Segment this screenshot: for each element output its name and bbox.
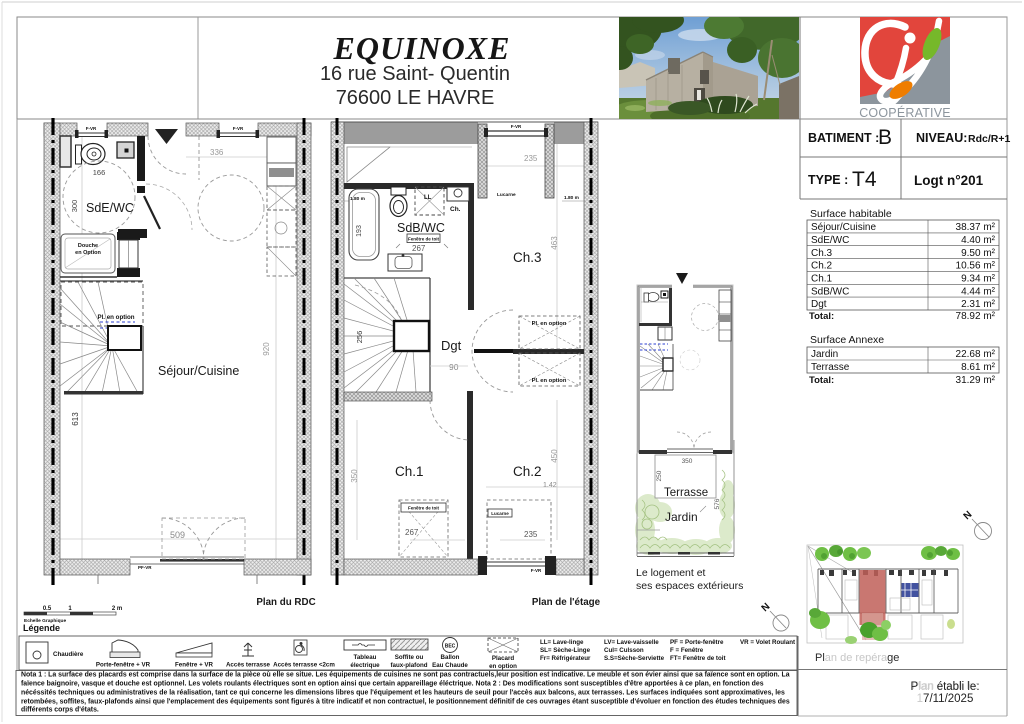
- svg-text:F-VR: F-VR: [531, 568, 542, 573]
- svg-text:en Option: en Option: [75, 250, 101, 256]
- svg-text:SL= Sèche-Linge: SL= Sèche-Linge: [540, 647, 591, 654]
- svg-text:Total:: Total:: [809, 311, 834, 322]
- svg-text:9.34 m²: 9.34 m²: [961, 274, 996, 285]
- svg-text:LL= Lave-linge: LL= Lave-linge: [540, 639, 584, 646]
- svg-text:Soffite ou: Soffite ou: [395, 654, 424, 661]
- svg-text:en option: en option: [489, 663, 517, 670]
- svg-text:faux-plafond: faux-plafond: [390, 662, 427, 669]
- svg-text:Ch.: Ch.: [450, 206, 461, 213]
- svg-text:TYPE :: TYPE :: [808, 173, 848, 187]
- svg-text:Terrasse: Terrasse: [811, 362, 850, 373]
- svg-text:38.37 m²: 38.37 m²: [956, 222, 996, 233]
- svg-text:Surface Annexe: Surface Annexe: [810, 334, 884, 346]
- svg-text:Ch.1: Ch.1: [811, 274, 833, 285]
- svg-text:Fenêtre de toit: Fenêtre de toit: [408, 237, 440, 242]
- svg-text:Dgt: Dgt: [441, 338, 462, 353]
- svg-text:4.44 m²: 4.44 m²: [961, 287, 996, 298]
- svg-text:Séjour/Cuisine: Séjour/Cuisine: [811, 222, 876, 233]
- svg-text:Légende: Légende: [23, 623, 60, 633]
- svg-text:17/11/2025: 17/11/2025: [917, 693, 974, 705]
- svg-text:Séjour/Cuisine: Séjour/Cuisine: [158, 364, 239, 378]
- svg-text:EQUINOXE: EQUINOXE: [333, 30, 511, 66]
- svg-text:Fenêtre + VR: Fenêtre + VR: [175, 662, 214, 669]
- svg-text:S.S=Sèche-Serviette: S.S=Sèche-Serviette: [604, 655, 665, 662]
- svg-text:235: 235: [524, 530, 538, 539]
- svg-text:Nota 1 : La surface des placar: Nota 1 : La surface des placards est com…: [21, 672, 790, 679]
- svg-text:Cul= Culsson: Cul= Culsson: [604, 647, 644, 654]
- svg-text:235: 235: [524, 154, 538, 163]
- svg-text:Plan établi le:: Plan établi le:: [910, 681, 979, 693]
- svg-text:NIVEAU:: NIVEAU:: [916, 131, 967, 145]
- svg-text:Pl. en option: Pl. en option: [532, 378, 567, 384]
- svg-text:0.5: 0.5: [43, 606, 52, 612]
- svg-text:VR = Volet Roulant: VR = Volet Roulant: [740, 639, 795, 646]
- svg-text:Ballon: Ballon: [441, 654, 460, 661]
- svg-text:Jardin: Jardin: [811, 349, 838, 360]
- svg-text:Lucarne: Lucarne: [491, 511, 509, 516]
- svg-text:336: 336: [210, 148, 224, 157]
- svg-text:22.68 m²: 22.68 m²: [956, 349, 996, 360]
- svg-text:SdE/WC: SdE/WC: [86, 201, 134, 215]
- svg-text:Pl. en option: Pl. en option: [97, 314, 134, 321]
- svg-text:nécéssités techniques ou admin: nécéssités techniques ou administratives…: [21, 690, 785, 697]
- svg-text:31.29 m²: 31.29 m²: [956, 375, 996, 386]
- svg-text:Lucarne: Lucarne: [497, 192, 516, 198]
- svg-text:Accès terrasse <2cm: Accès terrasse <2cm: [273, 662, 335, 669]
- svg-text:1.80 m: 1.80 m: [564, 195, 579, 201]
- svg-text:509: 509: [170, 530, 185, 540]
- svg-text:4.40 m²: 4.40 m²: [961, 235, 996, 246]
- svg-text:Jardin: Jardin: [665, 510, 698, 524]
- svg-text:F = Fenêtre: F = Fenêtre: [670, 647, 704, 654]
- svg-text:Surface habitable: Surface habitable: [810, 208, 892, 220]
- svg-text:PF = Porte-fenêtre: PF = Porte-fenêtre: [670, 639, 724, 646]
- svg-text:450: 450: [550, 449, 559, 463]
- svg-text:BEC: BEC: [445, 644, 456, 650]
- svg-text:Eau Chaude: Eau Chaude: [432, 662, 468, 669]
- svg-text:BATIMENT :: BATIMENT :: [808, 131, 879, 145]
- svg-text:576: 576: [714, 498, 721, 509]
- svg-text:350: 350: [682, 458, 693, 465]
- svg-text:Rdc/R+1: Rdc/R+1: [968, 133, 1010, 145]
- svg-text:Ch.2: Ch.2: [811, 261, 833, 272]
- svg-text:Plan de repérage: Plan de repérage: [815, 652, 899, 664]
- svg-text:F-VR: F-VR: [233, 126, 244, 131]
- svg-text:9.50 m²: 9.50 m²: [961, 248, 996, 259]
- svg-text:256: 256: [355, 331, 364, 344]
- svg-text:Chaudière: Chaudière: [53, 651, 84, 658]
- svg-text:Dgt: Dgt: [811, 299, 827, 310]
- svg-text:Accès terrasse: Accès terrasse: [226, 662, 271, 669]
- svg-text:920: 920: [262, 342, 271, 356]
- svg-text:Terrasse: Terrasse: [664, 487, 708, 499]
- svg-text:FT= Fenêtre de toit: FT= Fenêtre de toit: [670, 655, 726, 662]
- svg-text:Total:: Total:: [809, 375, 834, 386]
- svg-text:SdE/WC: SdE/WC: [811, 235, 849, 246]
- svg-text:T4: T4: [852, 168, 877, 191]
- svg-text:90: 90: [449, 362, 459, 372]
- svg-text:B: B: [878, 126, 892, 149]
- svg-text:SdB/WC: SdB/WC: [811, 287, 849, 298]
- svg-text:Ch.2: Ch.2: [513, 464, 542, 479]
- svg-text:ses espaces extérieurs: ses espaces extérieurs: [636, 580, 743, 592]
- svg-text:Pl. en option: Pl. en option: [532, 321, 567, 327]
- svg-text:Placard: Placard: [492, 655, 515, 662]
- svg-text:retombées, soffites, faux-plaf: retombées, soffites, faux-plafonds ainsi…: [21, 699, 790, 706]
- svg-text:Douche: Douche: [78, 243, 98, 249]
- svg-text:267: 267: [412, 244, 426, 253]
- svg-text:Logt n°201: Logt n°201: [914, 173, 984, 188]
- svg-text:Tableau: Tableau: [354, 654, 377, 661]
- svg-text:Plan du RDC: Plan du RDC: [256, 597, 315, 608]
- svg-text:10.56 m²: 10.56 m²: [956, 261, 996, 272]
- svg-text:2 m: 2 m: [112, 606, 122, 612]
- svg-text:Le logement et: Le logement et: [636, 567, 706, 579]
- svg-text:2.31 m²: 2.31 m²: [961, 299, 996, 310]
- svg-text:F-VR: F-VR: [511, 124, 522, 129]
- svg-text:1.42: 1.42: [543, 482, 557, 489]
- svg-text:LV= Lave-vaisselle: LV= Lave-vaisselle: [604, 639, 659, 646]
- svg-text:faïence baignoire, vasque et d: faïence baignoire, vasque et douche est …: [21, 681, 764, 688]
- svg-text:électrique: électrique: [350, 662, 380, 669]
- svg-text:Ch.3: Ch.3: [811, 248, 833, 259]
- svg-text:350: 350: [350, 469, 359, 483]
- svg-text:Fr= Réfrigérateur: Fr= Réfrigérateur: [540, 655, 591, 662]
- svg-text:16 rue Saint- Quentin: 16 rue Saint- Quentin: [320, 63, 510, 85]
- svg-text:463: 463: [550, 236, 559, 250]
- svg-text:166: 166: [93, 168, 106, 177]
- svg-text:Ch.3: Ch.3: [513, 250, 542, 265]
- svg-text:PF-VR: PF-VR: [138, 565, 152, 570]
- svg-text:SdB/WC: SdB/WC: [397, 221, 445, 235]
- svg-text:267: 267: [405, 528, 419, 537]
- svg-text:76600 LE HAVRE: 76600 LE HAVRE: [336, 87, 495, 109]
- svg-text:Ch.1: Ch.1: [395, 464, 424, 479]
- svg-text:LL: LL: [424, 195, 432, 201]
- svg-text:Fenêtre de toit: Fenêtre de toit: [408, 506, 440, 511]
- svg-text:300: 300: [70, 200, 79, 213]
- svg-text:1.80 m: 1.80 m: [350, 196, 365, 202]
- svg-text:différents corps d'états.: différents corps d'états.: [21, 707, 99, 714]
- svg-text:Plan de l'étage: Plan de l'étage: [532, 597, 601, 608]
- svg-text:F-VR: F-VR: [86, 126, 97, 131]
- svg-text:COOPÉRATIVE: COOPÉRATIVE: [859, 105, 951, 120]
- svg-text:193: 193: [356, 225, 363, 237]
- svg-text:613: 613: [71, 412, 80, 426]
- svg-text:Porte-fenêtre + VR: Porte-fenêtre + VR: [96, 662, 151, 669]
- svg-text:250: 250: [656, 470, 663, 481]
- svg-text:78.92 m²: 78.92 m²: [956, 311, 996, 322]
- svg-text:8.61 m²: 8.61 m²: [961, 362, 996, 373]
